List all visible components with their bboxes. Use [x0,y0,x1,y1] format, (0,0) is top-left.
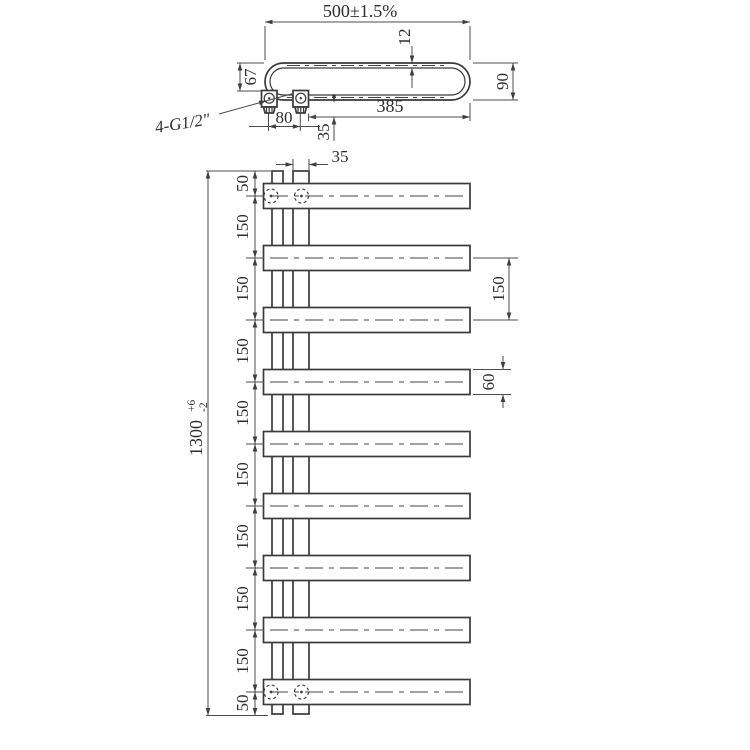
right-bar-spacing-label: 150 [489,276,508,302]
dim-tube-depth: 12 [395,29,414,89]
chain-dim-label: 150 [233,338,252,364]
technical-drawing-page: 4-G1/2″ 500±1.5% 12 [0,0,750,750]
dim-overall-width: 500±1.5% [265,1,470,60]
dim-fitting-offset: 35 [309,94,342,141]
chain-dim-label: 150 [233,648,252,674]
towel-bars [264,184,471,705]
overall-height-tol-upper: +6 [186,400,198,412]
riser-width-label: 35 [332,147,349,166]
dim-end-depth: 90 [473,63,518,100]
chain-dim-label: 150 [233,524,252,550]
chain-dim-label: 50 [233,175,252,192]
chain-dim-label: 150 [233,276,252,302]
straight-length-label: 385 [377,96,404,116]
dim-left-offset: 67 [237,63,264,91]
towel-rail-drawing: 4-G1/2″ 500±1.5% 12 [0,0,750,750]
chain-dim-label: 150 [233,462,252,488]
fitting-spacing-label: 80 [276,108,293,127]
fitting-offset-label: 35 [314,124,333,141]
chain-dim-label: 150 [233,400,252,426]
chain-dim-label: 50 [233,695,252,712]
dim-bar-width: 60 [473,356,511,408]
left-offset-label: 67 [241,68,260,86]
dim-fitting-spacing: 80 [249,108,320,131]
fitting-right [293,91,309,114]
overall-height-label: 1300 [186,420,206,456]
bar-width-label: 60 [479,374,498,391]
dim-riser-width: 35 [276,147,349,170]
dim-overall-height: 1300 +6 -2 [186,171,210,716]
chain-dim-label: 150 [233,214,252,240]
chain-dim-label: 150 [233,586,252,612]
thread-size-label: 4-G1/2″ [154,109,212,137]
overall-height-tol-lower: -2 [198,402,210,412]
top-view: 4-G1/2″ 500±1.5% 12 [154,1,518,141]
front-view: 35 50 150 [186,147,518,716]
tube-depth-label: 12 [395,29,414,46]
overall-width-label: 500±1.5% [323,1,397,21]
end-depth-label: 90 [493,73,512,90]
dim-right-bar-spacing: 150 [473,258,518,320]
